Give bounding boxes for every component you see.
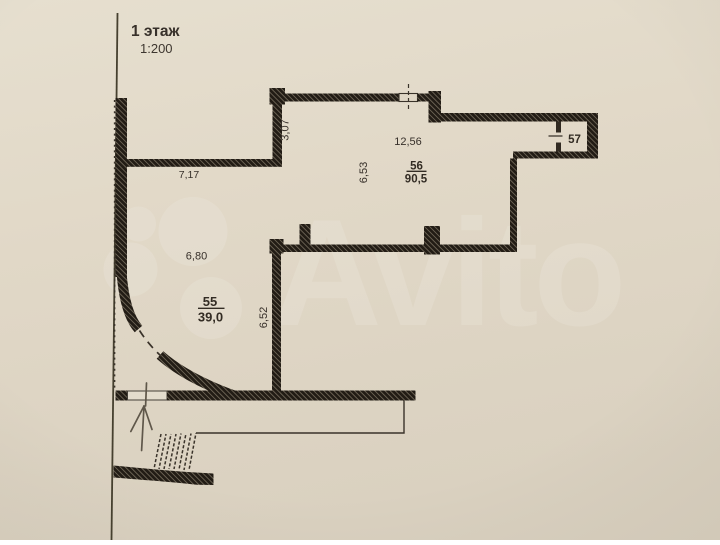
svg-text:90,5: 90,5: [405, 174, 428, 186]
svg-text:6,53: 6,53: [358, 162, 370, 183]
svg-text:Avito: Avito: [272, 188, 621, 358]
svg-text:55: 55: [203, 294, 217, 309]
svg-text:6,52: 6,52: [258, 307, 270, 328]
svg-text:1 этаж: 1 этаж: [131, 23, 180, 40]
svg-text:57: 57: [568, 134, 581, 146]
svg-text:6,80: 6,80: [186, 251, 207, 263]
svg-text:7,17: 7,17: [179, 169, 200, 181]
svg-text:1:200: 1:200: [140, 41, 173, 56]
svg-text:39,0: 39,0: [198, 310, 223, 325]
svg-text:3,07: 3,07: [280, 119, 292, 140]
svg-text:12,56: 12,56: [394, 136, 422, 148]
